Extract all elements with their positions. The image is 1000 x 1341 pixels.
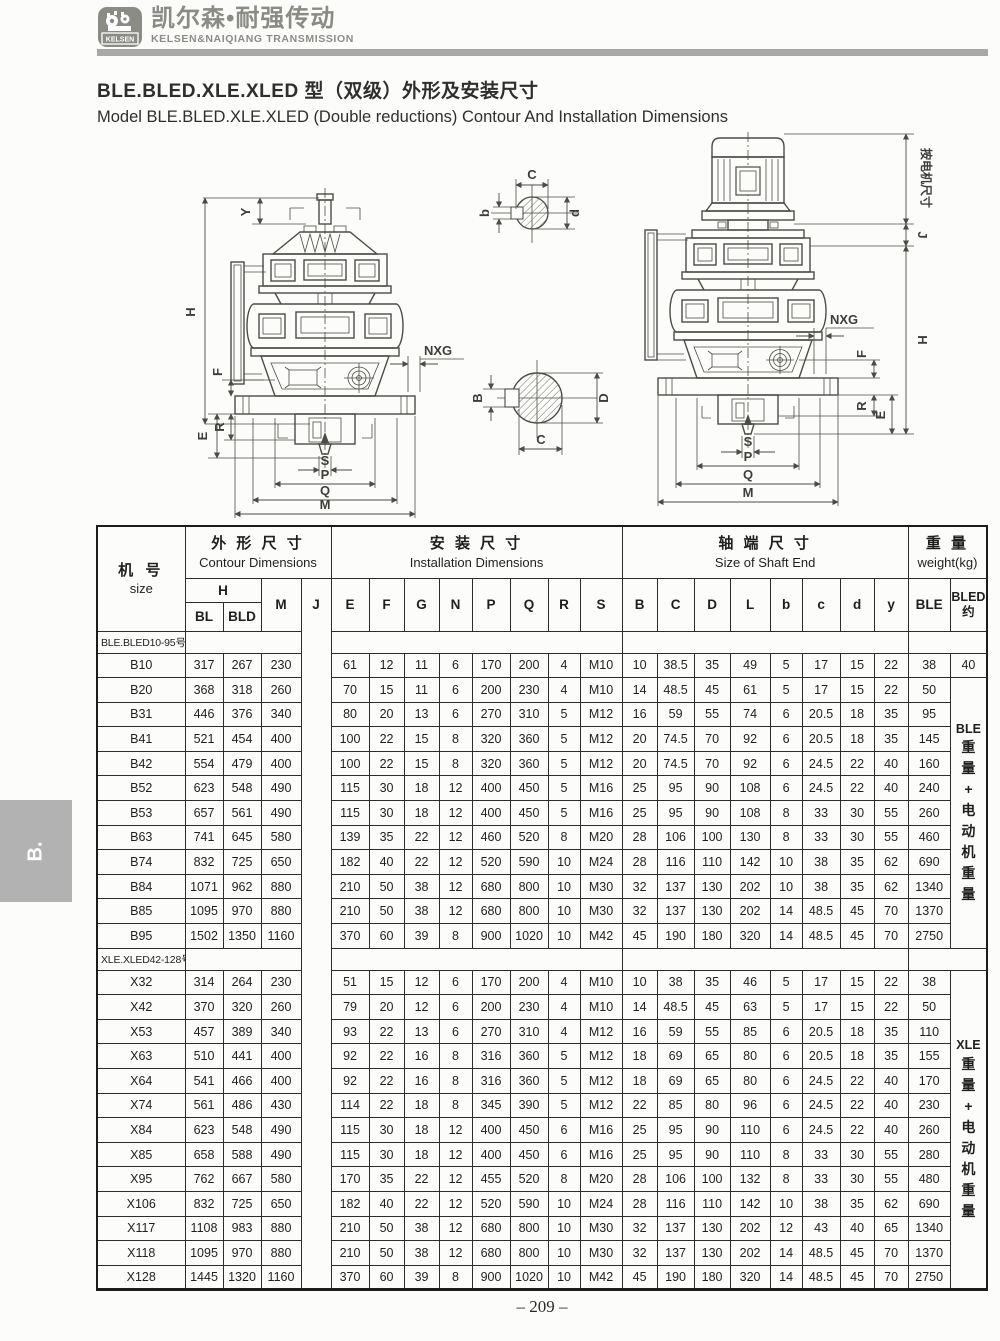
dim-cell: 48.5 — [802, 899, 840, 924]
dim-label-e-right: E — [873, 410, 888, 419]
dim-cell: 12 — [439, 1216, 472, 1241]
dim-label-h: H — [183, 307, 198, 316]
dim-cell: 725 — [223, 850, 261, 875]
weight-note-char: 机 — [961, 842, 975, 863]
weight-note-char: 量 — [961, 1075, 975, 1096]
col-header-L: L — [730, 578, 770, 631]
dim-cell: 12 — [439, 874, 472, 899]
dim-cell: 180 — [694, 924, 730, 949]
dim-cell: 202 — [730, 899, 770, 924]
dim-cell: 22 — [404, 825, 439, 850]
dim-cell: 4 — [548, 1019, 580, 1044]
col-header-G: G — [404, 578, 439, 631]
dim-cell: 32 — [622, 899, 657, 924]
dim-cell: 30 — [840, 1142, 874, 1167]
ble-weight-cell: 460 — [908, 825, 950, 850]
dim-cell: 22 — [840, 751, 874, 776]
dim-cell: 880 — [261, 1216, 301, 1241]
table-row: B85109597088021050381268080010M303213713… — [97, 899, 987, 924]
table-body: BLE.BLED10-95号B1031726723061121161702004… — [97, 631, 987, 1290]
dim-cell: 6 — [548, 1118, 580, 1143]
dim-cell: 800 — [510, 1241, 548, 1266]
dim-cell: 14 — [622, 678, 657, 703]
dim-label-p: P — [321, 467, 330, 482]
dim-cell: M24 — [580, 850, 622, 875]
dim-cell: 28 — [622, 1167, 657, 1192]
dim-cell: 800 — [510, 1216, 548, 1241]
weight-note-char: 机 — [961, 1159, 975, 1180]
dim-cell: 5 — [548, 801, 580, 826]
page-title: BLE.BLED.XLE.XLED 型（双级）外形及安装尺寸 Model BLE… — [97, 76, 728, 127]
dim-cell: 490 — [261, 1142, 301, 1167]
dim-cell: 170 — [472, 653, 510, 678]
dim-cell: 40 — [874, 751, 908, 776]
dim-label-b-cap: B — [470, 393, 485, 402]
dim-cell: 15 — [404, 727, 439, 752]
dim-cell: 90 — [694, 776, 730, 801]
dim-cell: 10 — [622, 970, 657, 995]
col-header-M: M — [261, 578, 301, 631]
col-header-BL: BL — [185, 602, 223, 631]
row-size: X118 — [97, 1241, 185, 1266]
weight-note-char: 重 — [961, 737, 975, 758]
dim-cell: 30 — [840, 825, 874, 850]
dim-cell: M12 — [580, 1093, 622, 1118]
section-spacer — [622, 631, 908, 653]
ble-weight-cell: 1340 — [908, 874, 950, 899]
dim-cell: 38 — [404, 899, 439, 924]
dim-cell: 12 — [439, 899, 472, 924]
dim-cell: 6 — [770, 1044, 802, 1069]
dim-cell: 100 — [694, 1167, 730, 1192]
dim-cell: 33 — [802, 1167, 840, 1192]
dim-cell: 6 — [770, 1019, 802, 1044]
table-row: X74561486430114221883453905M122285809662… — [97, 1093, 987, 1118]
header-divider-bar — [97, 49, 988, 56]
weight-note-char: + — [964, 1096, 972, 1117]
row-size: X74 — [97, 1093, 185, 1118]
dim-cell: 8 — [439, 1069, 472, 1094]
dim-cell: 10 — [770, 850, 802, 875]
dim-cell: 48.5 — [802, 1265, 840, 1290]
ble-weight-cell: 260 — [908, 1118, 950, 1143]
dim-cell: 360 — [510, 1044, 548, 1069]
dim-cell: 22 — [874, 970, 908, 995]
dim-cell: 24.5 — [802, 1118, 840, 1143]
col-header-P: P — [472, 578, 510, 631]
dim-cell: 400 — [261, 1044, 301, 1069]
dim-cell: 8 — [770, 825, 802, 850]
dim-cell: 645 — [223, 825, 261, 850]
dim-cell: 48.5 — [657, 995, 694, 1020]
dim-cell: 6 — [439, 678, 472, 703]
dim-cell: 45 — [622, 1265, 657, 1290]
dim-cell: M12 — [580, 751, 622, 776]
dim-cell: 108 — [730, 801, 770, 826]
dim-cell: 832 — [185, 850, 223, 875]
dim-cell: 490 — [261, 801, 301, 826]
dim-cell: 40 — [874, 776, 908, 801]
brand-name-en: KELSEN&NAIQIANG TRANSMISSION — [151, 33, 354, 45]
dim-cell: 38 — [802, 850, 840, 875]
ble-weight-cell: 2750 — [908, 1265, 950, 1290]
dim-cell: M10 — [580, 995, 622, 1020]
dim-cell: 450 — [510, 1118, 548, 1143]
dim-cell: 45 — [840, 924, 874, 949]
col-header-H: H — [185, 578, 261, 602]
dim-cell: 110 — [694, 850, 730, 875]
row-size: B85 — [97, 899, 185, 924]
dim-cell: 340 — [261, 1019, 301, 1044]
dim-cell: 400 — [472, 1142, 510, 1167]
dim-cell: 6 — [770, 1093, 802, 1118]
dim-cell: 59 — [657, 1019, 694, 1044]
dim-cell: 22 — [369, 1019, 404, 1044]
dim-cell: 100 — [694, 825, 730, 850]
dim-cell: 38 — [802, 1191, 840, 1216]
table-row: B1031726723061121161702004M101038.535495… — [97, 653, 987, 678]
table-row: X846235484901153018124004506M16259590110… — [97, 1118, 987, 1143]
section-spacer — [331, 948, 622, 970]
dim-cell: 8 — [770, 801, 802, 826]
dim-cell: 60 — [369, 1265, 404, 1290]
dim-cell: 18 — [404, 1118, 439, 1143]
col-header-b: b — [770, 578, 802, 631]
dim-cell: 316 — [472, 1044, 510, 1069]
dim-cell: 106 — [657, 825, 694, 850]
dim-cell: 10 — [770, 1191, 802, 1216]
dim-cell: 30 — [369, 776, 404, 801]
dim-cell: 28 — [622, 1191, 657, 1216]
dim-cell: 900 — [472, 924, 510, 949]
dim-cell: 4 — [548, 995, 580, 1020]
dim-cell: 48.5 — [657, 678, 694, 703]
dim-cell: 548 — [223, 1118, 261, 1143]
dim-cell: 33 — [802, 825, 840, 850]
dim-cell: 70 — [874, 1265, 908, 1290]
weight-note-char: 电 — [961, 1117, 975, 1138]
dim-cell: 320 — [472, 727, 510, 752]
dim-cell: 400 — [261, 1069, 301, 1094]
dim-cell: 137 — [657, 899, 694, 924]
dim-cell: 18 — [404, 1093, 439, 1118]
dim-cell: 142 — [730, 850, 770, 875]
table-row: B84107196288021050381268080010M303213713… — [97, 874, 987, 899]
col-header-J: J — [301, 578, 331, 631]
ble-weight-cell: 260 — [908, 801, 950, 826]
dim-cell: 12 — [439, 1191, 472, 1216]
dim-cell: 62 — [874, 874, 908, 899]
dim-cell: 6 — [439, 995, 472, 1020]
dim-cell: 8 — [548, 825, 580, 850]
dim-cell: 45 — [840, 899, 874, 924]
dim-cell: 15 — [840, 995, 874, 1020]
dim-cell: 320 — [472, 751, 510, 776]
dim-cell: 8 — [439, 1044, 472, 1069]
dim-cell: 39 — [404, 1265, 439, 1290]
dim-cell: 22 — [369, 1044, 404, 1069]
dim-cell: 45 — [622, 924, 657, 949]
dim-cell: 25 — [622, 1118, 657, 1143]
brand-header: KELSEN 凯尔森•耐强传动 KELSEN&NAIQIANG TRANSMIS… — [97, 6, 354, 48]
weight-note-text: BLE重量+电动机重量 — [951, 721, 987, 905]
dim-cell: 10 — [548, 1216, 580, 1241]
dim-cell: 18 — [840, 1044, 874, 1069]
dim-cell: 15 — [369, 678, 404, 703]
dim-cell: 680 — [472, 874, 510, 899]
dim-cell: 14 — [770, 1241, 802, 1266]
table-row: X5345738934093221362703104M1216595585620… — [97, 1019, 987, 1044]
dim-cell: 25 — [622, 776, 657, 801]
dim-label-r: R — [212, 422, 227, 432]
dim-cell: 6 — [770, 751, 802, 776]
dim-cell: 454 — [223, 727, 261, 752]
table-row: B42554479400100221583203605M122074.57092… — [97, 751, 987, 776]
dim-cell: 40 — [874, 1118, 908, 1143]
dim-cell: 460 — [472, 825, 510, 850]
dim-cell: 62 — [874, 1191, 908, 1216]
dim-cell: 741 — [185, 825, 223, 850]
dim-cell: 12 — [439, 1118, 472, 1143]
dim-cell: 4 — [548, 678, 580, 703]
dim-cell: 70 — [874, 924, 908, 949]
ble-weight-cell: 170 — [908, 1069, 950, 1094]
dim-cell: 39 — [404, 924, 439, 949]
dim-cell: 455 — [472, 1167, 510, 1192]
dim-cell: 190 — [657, 924, 694, 949]
dim-cell: 22 — [369, 1093, 404, 1118]
ble-weight-cell: 230 — [908, 1093, 950, 1118]
dim-cell: 1350 — [223, 924, 261, 949]
weight-note-char: 重 — [961, 1054, 975, 1075]
dim-cell: 22 — [840, 1069, 874, 1094]
dim-cell: 20 — [369, 702, 404, 727]
dim-cell: M42 — [580, 924, 622, 949]
table-row: B2036831826070151162002304M101448.545615… — [97, 678, 987, 703]
dim-cell: 35 — [694, 970, 730, 995]
dim-cell: 48.5 — [802, 1241, 840, 1266]
dim-cell: 74.5 — [657, 751, 694, 776]
dim-cell: 35 — [840, 850, 874, 875]
dim-cell: 6 — [439, 653, 472, 678]
bled-motor-drawing: NXG F R E 按电机尺寸 J H S P — [628, 128, 1000, 524]
dim-cell: M16 — [580, 1142, 622, 1167]
table-row: X3231426423051151261702004M1010383546517… — [97, 970, 987, 995]
table-row: X118109597088021050381268080010M30321371… — [97, 1241, 987, 1266]
dim-cell: 200 — [472, 678, 510, 703]
dim-cell: 40 — [369, 1191, 404, 1216]
dim-label-b-small: b — [477, 209, 492, 217]
dim-cell: 5 — [770, 970, 802, 995]
dim-label-h-right: H — [915, 335, 930, 344]
weight-note-char: 电 — [961, 800, 975, 821]
dim-label-s-right: S — [744, 434, 753, 449]
dim-cell: 182 — [331, 1191, 369, 1216]
dim-cell: 1445 — [185, 1265, 223, 1290]
dim-label-c-bottom: C — [536, 432, 546, 447]
dim-cell: 320 — [730, 924, 770, 949]
dim-cell: 59 — [657, 702, 694, 727]
dim-cell: 22 — [622, 1093, 657, 1118]
dim-cell: 92 — [331, 1044, 369, 1069]
row-size: B95 — [97, 924, 185, 949]
dim-cell: 35 — [369, 825, 404, 850]
dim-cell: 230 — [510, 678, 548, 703]
dim-cell: 79 — [331, 995, 369, 1020]
dim-cell: 22 — [840, 1093, 874, 1118]
dim-cell: 35 — [874, 727, 908, 752]
ble-weight-cell: 480 — [908, 1167, 950, 1192]
dim-cell: 210 — [331, 1241, 369, 1266]
dim-cell: 48.5 — [802, 924, 840, 949]
dim-cell: 400 — [261, 751, 301, 776]
brand-name-cn: 凯尔森•耐强传动 — [151, 6, 354, 32]
col-header-D: D — [694, 578, 730, 631]
dim-cell: 6 — [439, 970, 472, 995]
dim-cell: 170 — [472, 970, 510, 995]
dim-cell: 95 — [657, 776, 694, 801]
dim-cell: 14 — [770, 899, 802, 924]
ble-weight-cell: 110 — [908, 1019, 950, 1044]
dim-cell: 10 — [622, 653, 657, 678]
output-shaft-section: B D C — [470, 360, 611, 455]
dim-cell: 210 — [331, 899, 369, 924]
dim-cell: 650 — [261, 1191, 301, 1216]
dim-cell: 10 — [548, 1241, 580, 1266]
dim-cell: 310 — [510, 1019, 548, 1044]
dim-cell: 520 — [472, 1191, 510, 1216]
row-size: B63 — [97, 825, 185, 850]
dim-cell: 832 — [185, 1191, 223, 1216]
dim-cell: 376 — [223, 702, 261, 727]
dim-cell: 45 — [840, 1241, 874, 1266]
dim-cell: 590 — [510, 1191, 548, 1216]
dim-cell: 85 — [657, 1093, 694, 1118]
dim-cell: 541 — [185, 1069, 223, 1094]
dim-cell: 90 — [694, 1118, 730, 1143]
dim-cell: 22 — [874, 995, 908, 1020]
row-size: X32 — [97, 970, 185, 995]
ble-weight-cell: 690 — [908, 850, 950, 875]
table-row: X4237032026079201262002304M101448.545635… — [97, 995, 987, 1020]
dim-cell: 90 — [694, 801, 730, 826]
dim-cell: 38.5 — [657, 653, 694, 678]
dim-cell: 35 — [874, 1019, 908, 1044]
dim-cell: 800 — [510, 899, 548, 924]
dim-label-d-cap: D — [596, 393, 611, 402]
row-size: X128 — [97, 1265, 185, 1290]
dim-cell: 623 — [185, 776, 223, 801]
dim-cell: 390 — [510, 1093, 548, 1118]
dim-cell: 12 — [439, 825, 472, 850]
dim-cell: 130 — [694, 874, 730, 899]
row-size: X42 — [97, 995, 185, 1020]
dim-cell: 55 — [694, 1019, 730, 1044]
dim-cell: M42 — [580, 1265, 622, 1290]
dim-cell: 14 — [770, 924, 802, 949]
dim-cell: 389 — [223, 1019, 261, 1044]
dim-cell: M16 — [580, 1118, 622, 1143]
table-row: B637416455801393522124605208M20281061001… — [97, 825, 987, 850]
ble-weight-cell: 1370 — [908, 1241, 950, 1266]
dim-cell: 35 — [369, 1167, 404, 1192]
section-spacer — [908, 631, 987, 653]
row-size: B42 — [97, 751, 185, 776]
dim-cell: 202 — [730, 874, 770, 899]
dim-cell: 490 — [261, 776, 301, 801]
dim-cell: 20 — [622, 751, 657, 776]
dim-cell: 230 — [510, 995, 548, 1020]
section-side-tab: B. — [0, 800, 72, 902]
table-row: X12814451320116037060398900102010M424519… — [97, 1265, 987, 1290]
dim-cell: 466 — [223, 1069, 261, 1094]
dim-cell: 74.5 — [657, 727, 694, 752]
dim-cell: 116 — [657, 1191, 694, 1216]
col-header-Q: Q — [510, 578, 548, 631]
weight-note-char: 动 — [961, 821, 975, 842]
section-spacer — [331, 631, 622, 653]
dim-cell: 8 — [439, 727, 472, 752]
col-header-y: y — [874, 578, 908, 631]
dim-label-q-right: Q — [743, 467, 753, 482]
dim-cell: 30 — [369, 801, 404, 826]
dim-cell: 115 — [331, 776, 369, 801]
dim-cell: M12 — [580, 1044, 622, 1069]
dim-cell: 130 — [694, 899, 730, 924]
dim-cell: 25 — [622, 801, 657, 826]
dim-cell: 368 — [185, 678, 223, 703]
dim-cell: 5 — [548, 702, 580, 727]
weight-note-cell: XLE重量+电动机重量 — [950, 970, 987, 1290]
dim-cell: 180 — [694, 1265, 730, 1290]
dim-cell: 30 — [840, 1167, 874, 1192]
dim-cell: 490 — [261, 1118, 301, 1143]
dim-cell: 55 — [874, 801, 908, 826]
dim-cell: 45 — [694, 995, 730, 1020]
dim-cell: 1020 — [510, 1265, 548, 1290]
dim-cell: 137 — [657, 1241, 694, 1266]
page-number: – 209 – — [97, 1297, 987, 1317]
dim-cell: M12 — [580, 1019, 622, 1044]
dim-cell: 12 — [369, 653, 404, 678]
dim-cell: 5 — [548, 776, 580, 801]
dim-cell: 24.5 — [802, 1069, 840, 1094]
dim-cell: 139 — [331, 825, 369, 850]
table-row: B7483272565018240221252059010M2428116110… — [97, 850, 987, 875]
dim-cell: 22 — [840, 776, 874, 801]
dim-cell: 95 — [657, 801, 694, 826]
dim-cell: 10 — [770, 874, 802, 899]
dim-label-p-right: P — [744, 449, 753, 464]
dim-cell: 370 — [185, 995, 223, 1020]
dim-cell: 20 — [369, 995, 404, 1020]
dim-cell: 70 — [874, 899, 908, 924]
dim-cell: 1320 — [223, 1265, 261, 1290]
dim-cell: 800 — [510, 874, 548, 899]
dim-cell: 35 — [840, 1191, 874, 1216]
dim-label-d-small: d — [567, 209, 582, 217]
dim-cell: 6 — [439, 702, 472, 727]
dim-cell: 142 — [730, 1191, 770, 1216]
dim-cell: 1071 — [185, 874, 223, 899]
dim-cell: 13 — [404, 1019, 439, 1044]
dim-cell: 270 — [472, 702, 510, 727]
table-row: X856585884901153018124004506M16259590110… — [97, 1142, 987, 1167]
dim-cell: 92 — [730, 751, 770, 776]
table-row: X6454146640092221683163605M1218696580624… — [97, 1069, 987, 1094]
dim-cell: 260 — [261, 678, 301, 703]
col-header-S: S — [580, 578, 622, 631]
